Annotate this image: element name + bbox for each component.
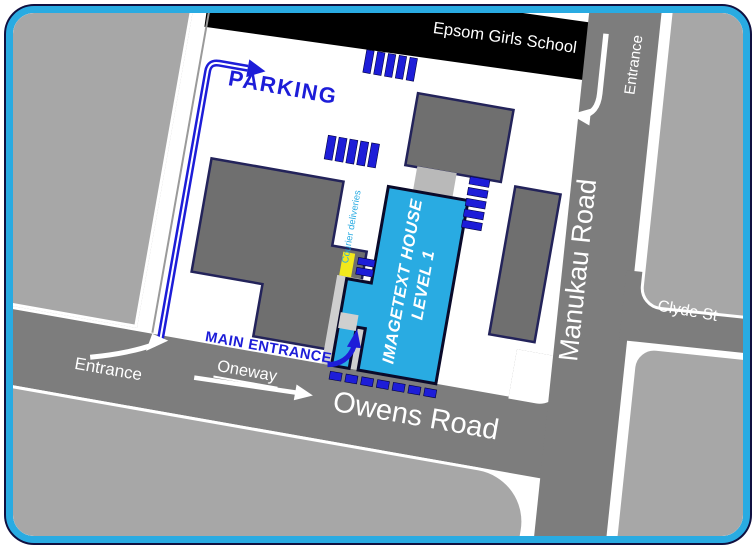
oneway-arrowhead-icon: [294, 385, 315, 404]
parking-bay-marker: [406, 57, 417, 81]
boundary-line: [152, 13, 208, 333]
parking-row-north: [363, 50, 418, 82]
site-drawing: [6, 6, 750, 543]
owens-entrance-arrowhead-icon: [146, 333, 169, 354]
walkway-notch: [338, 312, 359, 331]
parking-row-middle: [324, 135, 379, 168]
parking-bay-marker: [374, 52, 385, 76]
parking-bay-marker: [392, 382, 405, 392]
parking-bay-marker: [335, 137, 347, 162]
parking-bay-marker: [346, 139, 358, 164]
map-canvas: Manukau Road Clyde St Entrance: [6, 6, 750, 543]
map-frame: Manukau Road Clyde St Entrance: [6, 6, 750, 543]
parking-stack-east: [461, 177, 490, 231]
parking-bay-marker: [395, 55, 406, 79]
parking-bay-marker: [361, 377, 374, 387]
parking-bay-marker: [384, 53, 395, 77]
parking-bay-marker: [408, 385, 421, 395]
parking-bay-marker: [424, 388, 437, 398]
parking-bay-marker: [376, 380, 389, 390]
parking-bay-marker: [324, 135, 336, 160]
parking-bay-marker: [368, 143, 380, 168]
parking-bay-marker: [357, 141, 369, 166]
parking-bay-marker: [363, 50, 374, 74]
building-east: [489, 187, 560, 343]
parking-bay-marker: [467, 187, 488, 198]
parking-bay-marker: [345, 374, 358, 384]
parking-bay-marker: [329, 371, 342, 381]
